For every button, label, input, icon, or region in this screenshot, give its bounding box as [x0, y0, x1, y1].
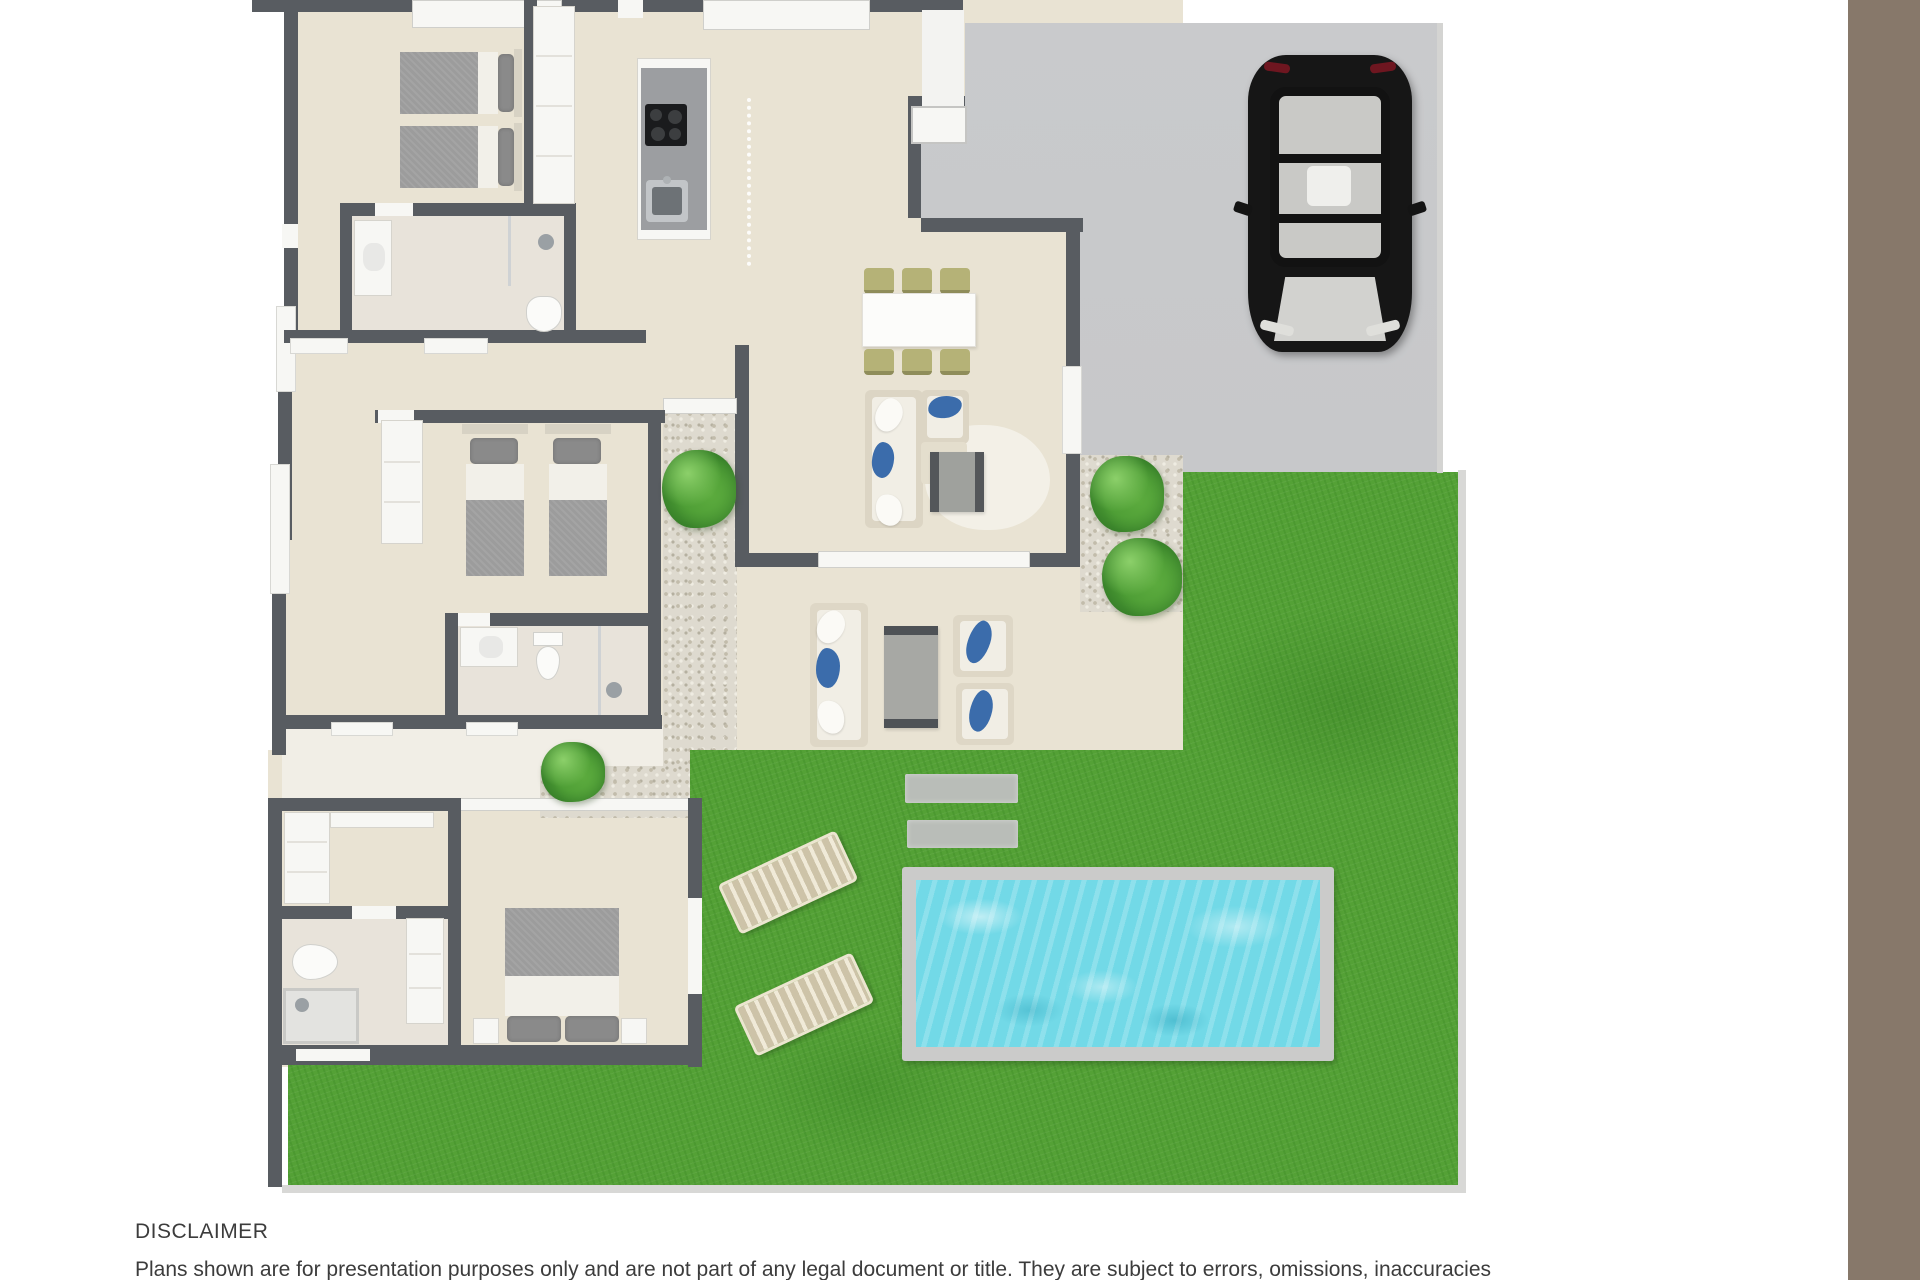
sliding-door [818, 551, 1030, 568]
wall-left [268, 798, 282, 1187]
bush-icon [541, 742, 605, 802]
sink [646, 180, 688, 222]
bed-headboard [545, 424, 611, 434]
toilet [533, 632, 563, 646]
faucet-icon [663, 176, 671, 184]
bed-pillow [498, 128, 514, 186]
door-opening [375, 203, 413, 216]
shelf-line [536, 155, 572, 157]
nightstand [621, 1018, 647, 1044]
door-sill [466, 722, 518, 736]
burner [650, 109, 662, 121]
window [663, 398, 737, 414]
fence-driveway [1437, 23, 1443, 473]
bed-blanket [466, 500, 524, 576]
table-band [884, 626, 938, 635]
bush-icon [1090, 456, 1164, 532]
window [688, 898, 702, 994]
table-band [975, 452, 984, 512]
shelf-line [384, 461, 420, 463]
window-sill [296, 1049, 370, 1061]
car-pillar [1279, 154, 1381, 163]
shelf-line [409, 953, 441, 955]
shower-glass [598, 626, 601, 715]
linen-cabinet [406, 918, 444, 1024]
bush-icon [662, 450, 736, 528]
wall [648, 410, 661, 722]
wall [643, 0, 703, 12]
shower-head-icon [538, 234, 554, 250]
shelf-line [536, 105, 572, 107]
bed-blanket [505, 908, 619, 976]
door-sill [331, 722, 393, 736]
dining-chair [902, 349, 932, 375]
wall [340, 203, 352, 343]
side-accent-bar [1848, 0, 1920, 1280]
wardrobe [533, 6, 575, 204]
bed-headboard [514, 123, 522, 191]
stepping-stone [907, 820, 1018, 848]
pool [902, 867, 1334, 1061]
burner [669, 128, 681, 140]
bed-sheet [549, 464, 607, 500]
car-seat [1307, 166, 1351, 206]
vanity [354, 220, 392, 296]
dining-chair [864, 268, 894, 294]
basin [479, 636, 503, 658]
bed-headboard [462, 424, 528, 434]
bed-blanket [549, 500, 607, 576]
threshold-dotted-line [747, 98, 751, 266]
sink-basin [652, 187, 682, 215]
outdoor-armchair [956, 683, 1014, 745]
outdoor-armchair [953, 615, 1013, 677]
wall [445, 613, 458, 722]
bed-pillow [565, 1016, 619, 1042]
fence-bottom [282, 1185, 1466, 1193]
fence-right [1458, 470, 1466, 1188]
car-glasshouse [1270, 87, 1390, 267]
bed-double [473, 908, 647, 1046]
shelf-line [287, 841, 327, 843]
dining-table [862, 293, 976, 347]
window-sill [424, 338, 488, 354]
outdoor-table [884, 626, 938, 728]
shelf-line [536, 55, 572, 57]
bush-icon [1102, 538, 1182, 616]
toilet [526, 296, 562, 332]
basin [363, 243, 385, 271]
window-sill [290, 338, 348, 354]
bed-pillow [507, 1016, 561, 1042]
burner [651, 127, 665, 141]
disclaimer-body: Plans shown are for presentation purpose… [135, 1258, 1491, 1280]
burner [668, 110, 682, 124]
floor-plan [0, 0, 1920, 1280]
dining-chair [902, 268, 932, 294]
vanity [460, 627, 518, 667]
wall-left [284, 0, 298, 340]
entry-walkway [922, 10, 964, 106]
wall [564, 203, 576, 343]
kitchen-island [637, 58, 711, 240]
door-opening [618, 0, 643, 18]
bed-headboard [514, 49, 522, 117]
bed-sheet [478, 126, 498, 188]
front-door [911, 106, 967, 144]
walk-in-robe-shelf [284, 812, 330, 904]
dining-chair [940, 268, 970, 294]
window [270, 464, 290, 594]
shower-head-icon [606, 682, 622, 698]
bed-twin [466, 428, 524, 576]
stepping-stone [905, 774, 1018, 803]
bed-twin [400, 126, 522, 188]
car [1248, 55, 1412, 352]
bed-sheet [505, 976, 619, 1016]
nightstand [473, 1018, 499, 1044]
window [1062, 366, 1082, 454]
disclaimer-title: DISCLAIMER [135, 1220, 268, 1244]
bed-pillow [553, 438, 601, 464]
bed-sheet [478, 52, 498, 114]
page: { "disclaimer": { "title": "DISCLAIMER",… [0, 0, 1920, 1280]
shower-head-icon [295, 998, 309, 1012]
bed-pillow [470, 438, 518, 464]
cooktop [645, 104, 687, 146]
window [282, 224, 298, 248]
table-band [884, 719, 938, 728]
bed-blanket [400, 126, 478, 188]
shelf-line [384, 501, 420, 503]
dining-chair [940, 349, 970, 375]
window [703, 0, 870, 30]
wall [921, 218, 1083, 232]
wardrobe [381, 420, 423, 544]
wall [735, 345, 749, 567]
coffee-table [930, 452, 984, 512]
car-pillar [1279, 214, 1381, 223]
door-opening [352, 906, 396, 919]
shower-tray [283, 988, 359, 1044]
bed-sheet [466, 464, 524, 500]
table-band [930, 452, 939, 512]
bed-blanket [400, 52, 478, 114]
shower-glass [508, 216, 511, 286]
bed-twin [549, 428, 607, 576]
pool-water [916, 880, 1320, 1047]
wall [448, 798, 461, 1047]
shelf-line [409, 987, 441, 989]
shelf-line [287, 871, 327, 873]
bed-pillow [498, 54, 514, 112]
dining-chair [864, 349, 894, 375]
bed-twin [400, 52, 522, 114]
wall [252, 0, 412, 12]
walk-in-robe-shelf [330, 812, 434, 828]
